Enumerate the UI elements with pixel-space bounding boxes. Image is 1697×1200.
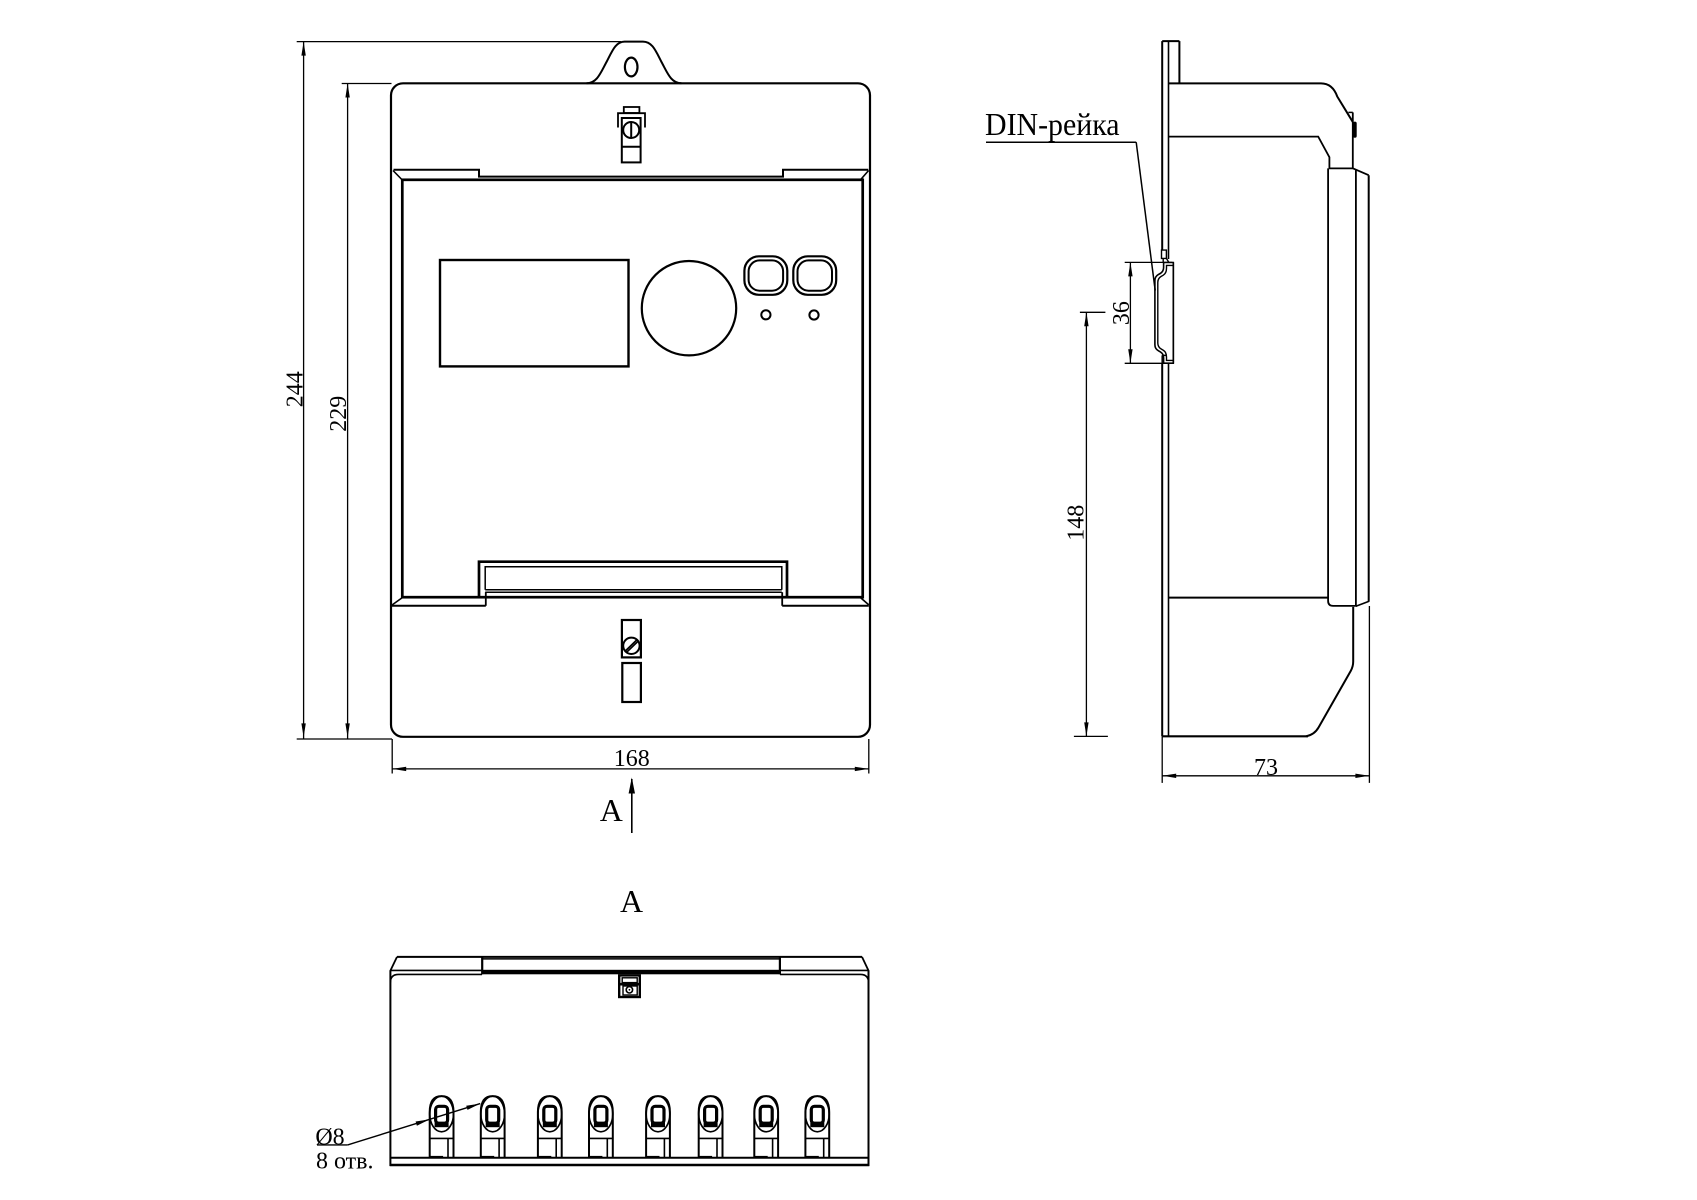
svg-text:8 отв.: 8 отв. [316,1149,374,1175]
svg-text:73: 73 [1254,755,1278,781]
svg-text:168: 168 [614,746,650,772]
svg-text:Ø8: Ø8 [315,1124,344,1150]
svg-text:229: 229 [326,396,352,432]
svg-text:A: A [600,792,623,828]
svg-text:A: A [620,883,643,919]
svg-text:148: 148 [1064,505,1090,541]
svg-text:36: 36 [1109,301,1135,325]
svg-text:244: 244 [283,371,309,407]
svg-text:DIN-рейка: DIN-рейка [985,106,1120,142]
